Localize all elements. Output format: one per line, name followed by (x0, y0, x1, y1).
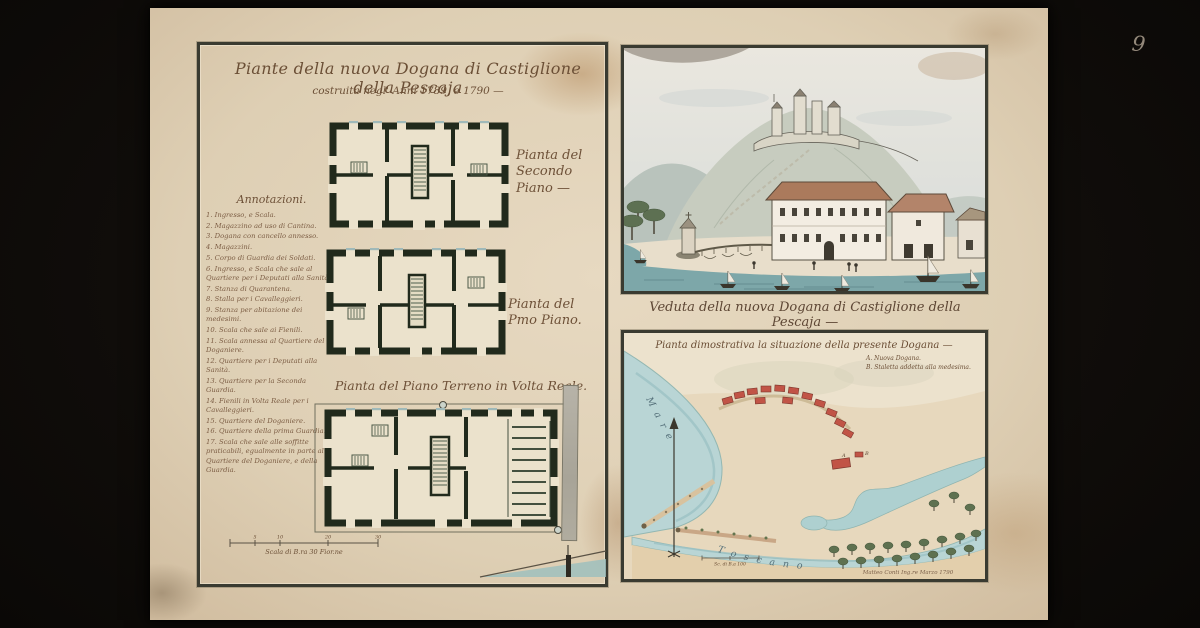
annotation-item: 4. Magazzini. (206, 243, 337, 252)
annotation-item: 1. Ingresso, e Scala. (206, 211, 337, 220)
annotation-item: 8. Stalla per i Cavalleggieri. (206, 295, 337, 304)
manuscript-sheet: 9 Piante della nuova Dogana di Castiglio… (150, 8, 1048, 620)
veduta-caption: Veduta della nuova Dogana di Castiglione… (625, 300, 985, 330)
marker-a-label: A (841, 453, 846, 459)
svg-text:10: 10 (277, 535, 284, 541)
annotation-item: 7. Stanza di Quarantena. (206, 285, 337, 294)
left-panel-frame: Piante della nuova Dogana di Castiglione… (197, 42, 608, 587)
map-title: Pianta dimostrativa la situazione della … (654, 340, 952, 351)
veduta-frame (621, 45, 988, 294)
plan-scale-bar: 5 10 20 30 Scala di B.ra 30 Fior.ne (228, 534, 388, 560)
map-signature: Matteo Conti Ing.re Marzo 1790 (862, 570, 954, 576)
map-scale-label: Sc. di B.a 100 (714, 562, 746, 568)
annotation-item: 11. Scala annessa al Quartiere del Dogan… (206, 337, 337, 355)
annotation-item: 2. Magazzino ad uso di Cantina. (206, 222, 337, 231)
map-frame: A B Pianta dimostrativa la situazione de… (621, 330, 988, 582)
annotation-item: 13. Quartiere per la Seconda Guardia. (206, 377, 337, 395)
photo-backdrop: 9 Piante della nuova Dogana di Castiglio… (0, 0, 1200, 628)
map-legend-a: A. Nuova Dogana. (865, 355, 921, 362)
annotation-item: 10. Scala che sale ai Fienili. (206, 326, 337, 335)
well (440, 402, 447, 409)
stairwell (431, 437, 449, 495)
annotations-heading: Annotazioni. (206, 193, 337, 206)
annotation-item: 3. Dogana con cancello annesso. (206, 232, 337, 241)
annotation-item: 5. Corpo di Guardia dei Soldati. (206, 254, 337, 263)
wall-section-strip (561, 385, 579, 541)
first-floor-plan-drawing (322, 245, 510, 359)
annotation-item: 9. Stanza per abitazione dei medesimi. (206, 306, 337, 324)
map-legend-b: B. Staletta addetta alla medesima. (865, 364, 971, 371)
svg-text:5: 5 (253, 535, 256, 541)
annotation-item: 6. Ingresso, e Scala che sale al Quartie… (206, 265, 337, 283)
sheet-subtitle: costruita negl' Anni 1789, e 1790 — (212, 85, 604, 97)
annotation-item: 12. Quartiere per i Deputati alla Sanità… (206, 357, 337, 375)
plan-label-second-floor: Pianta del Secondo Piano — (516, 148, 592, 197)
second-floor-plan-drawing (325, 118, 513, 232)
annex-building (888, 194, 954, 260)
plan-scale-label: Scala di B.ra 30 Fior.ne (265, 548, 343, 556)
customs-building (766, 182, 892, 260)
ground-floor-plan-drawing (312, 397, 580, 539)
plan-label-first-floor: Pianta del Pmo Piano. (508, 297, 594, 330)
margin-page-number: 9 (1131, 31, 1147, 56)
pier-profile-drawing (478, 539, 608, 581)
veduta-drawing (624, 48, 985, 291)
svg-text:30: 30 (375, 535, 382, 541)
marker-b-label: B (864, 451, 869, 457)
svg-text:20: 20 (324, 535, 332, 541)
plan-label-ground-floor: Pianta del Piano Terreno in Volta Reale. (330, 378, 592, 393)
site-map-drawing: A B Pianta dimostrativa la situazione de… (624, 333, 985, 579)
